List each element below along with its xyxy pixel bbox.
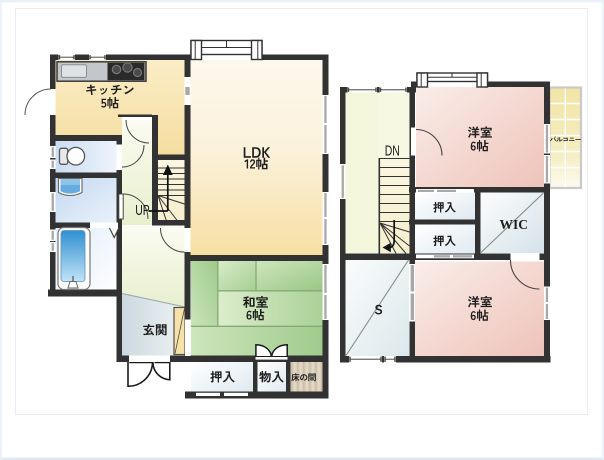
svg-text:WIC: WIC (499, 217, 528, 232)
svg-text:DN: DN (385, 143, 400, 159)
svg-text:UP: UP (135, 202, 149, 218)
